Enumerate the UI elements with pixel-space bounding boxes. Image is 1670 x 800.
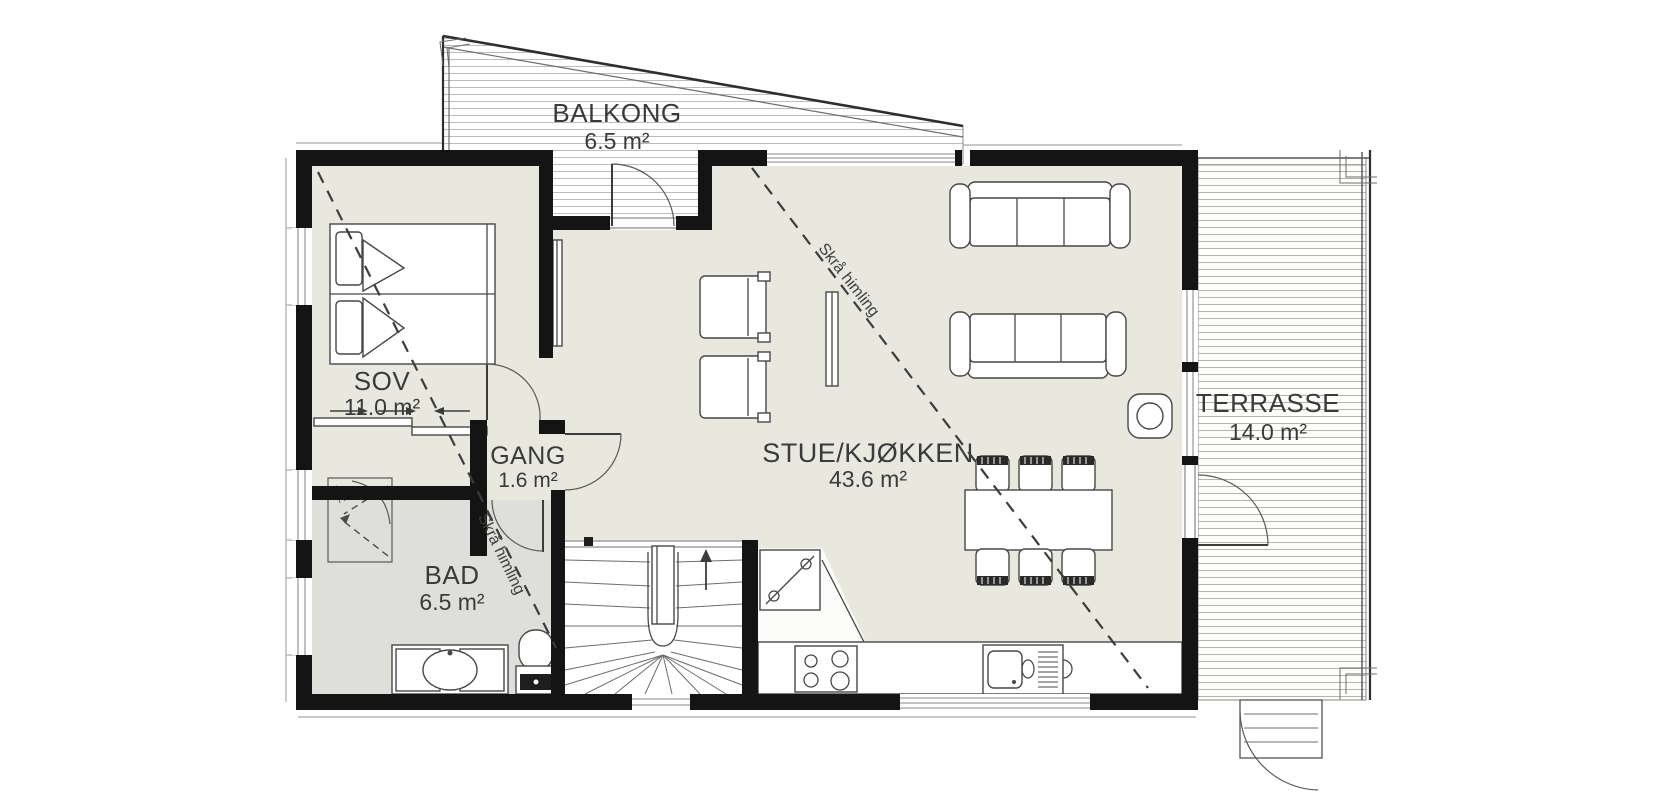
vanity-sink <box>392 645 508 694</box>
dining-chair <box>976 549 1009 585</box>
area-bad: 6.5 m² <box>419 589 485 615</box>
kitchen-sink <box>983 645 1072 694</box>
label-stue-kjokken: STUE/KJØKKEN <box>762 438 974 468</box>
terrace-exit-steps <box>1240 700 1322 790</box>
area-gang: 1.6 m² <box>498 469 558 492</box>
terrace <box>1198 150 1377 790</box>
dining-chair <box>1062 549 1095 585</box>
floor-plan: Skrå himling Skrå himling BALKONG 6.5 m²… <box>0 0 1670 800</box>
window <box>627 694 695 710</box>
label-gang: GANG <box>490 442 566 470</box>
area-balkong: 6.5 m² <box>584 128 650 154</box>
tv-panel <box>553 240 562 346</box>
cooktop <box>795 646 857 692</box>
area-sov: 11.0 m² <box>344 394 421 420</box>
dining-chair <box>976 456 1009 492</box>
faucet <box>448 651 453 656</box>
wood-stove <box>1128 394 1172 438</box>
dining-chairs-bottom <box>976 549 1095 585</box>
dining-table <box>965 490 1112 550</box>
window <box>292 470 312 540</box>
area-stue-kjokken: 43.6 m² <box>829 466 907 492</box>
dining-chair <box>1019 456 1052 492</box>
pillow <box>336 232 362 285</box>
window <box>292 578 312 655</box>
armchair <box>700 272 770 342</box>
floor-plan-drawing: Skrå himling Skrå himling BALKONG 6.5 m²… <box>0 0 1670 800</box>
label-bad: BAD <box>425 560 480 590</box>
window <box>900 694 1090 710</box>
window <box>292 228 312 305</box>
area-terrasse: 14.0 m² <box>1229 419 1307 445</box>
tv-panel <box>826 292 838 386</box>
window <box>760 150 962 166</box>
sofa <box>950 182 1130 248</box>
pillow <box>336 301 362 354</box>
label-sov: SOV <box>354 366 411 396</box>
dining-chair <box>1062 456 1095 492</box>
window <box>1182 290 1198 362</box>
label-balkong: BALKONG <box>552 98 681 128</box>
armchair <box>700 352 770 422</box>
double-bed <box>330 224 495 364</box>
sofa <box>950 312 1126 378</box>
toilet <box>516 630 556 694</box>
label-terrasse: TERRASSE <box>1196 388 1340 418</box>
